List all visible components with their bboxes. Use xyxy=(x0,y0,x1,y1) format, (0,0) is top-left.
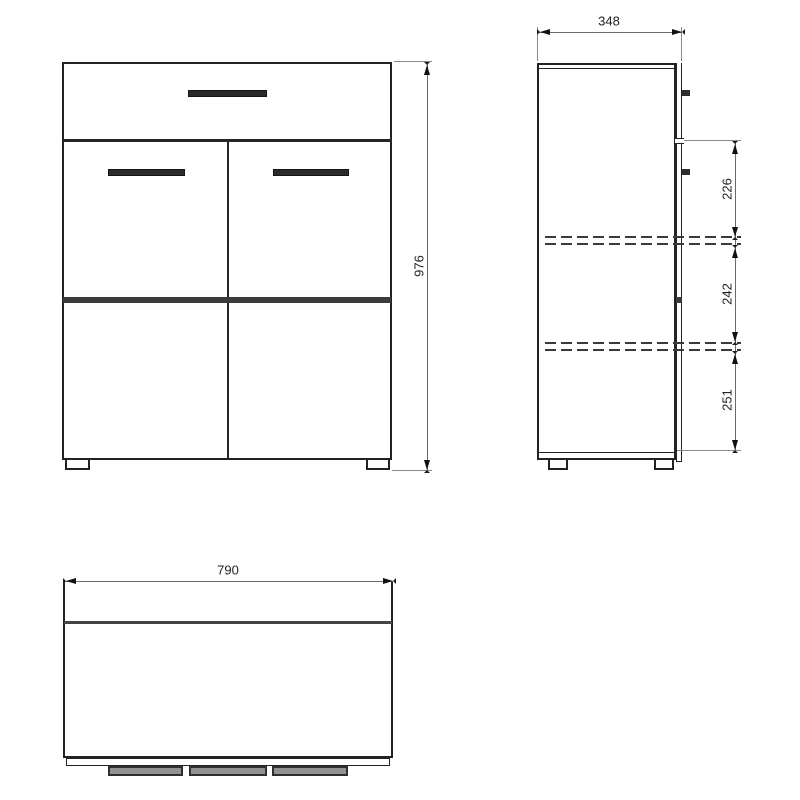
width-arrow-left-icon xyxy=(63,578,76,584)
front-right-foot xyxy=(366,460,390,470)
shelf-dashed-line-2b xyxy=(545,349,741,351)
shelf-dashed-line-2a xyxy=(545,342,741,344)
depth-arrow-right-icon xyxy=(672,29,685,35)
top-front-panel xyxy=(66,758,390,766)
section-arrow-2-icon xyxy=(732,227,738,240)
height-dim-line xyxy=(427,62,428,470)
front-accent-band xyxy=(63,297,391,303)
front-left-foot xyxy=(65,460,90,470)
side-top-panel-line xyxy=(539,68,674,69)
side-front-panel-joint xyxy=(675,138,684,144)
section-arrow-3-icon xyxy=(732,245,738,258)
side-bottom-panel-line xyxy=(539,452,674,453)
side-drawer-handle-knob xyxy=(682,90,690,96)
section-arrow-4-icon xyxy=(732,332,738,345)
top-back-edge-line xyxy=(64,621,392,624)
front-left-door-handle xyxy=(108,169,185,176)
section-dim-line xyxy=(735,141,736,450)
height-dimension-label: 976 xyxy=(413,255,426,277)
section-arrow-6-icon xyxy=(732,440,738,453)
shelf-spacing-label-3: 251 xyxy=(721,389,734,411)
width-dim-line xyxy=(63,581,393,582)
width-dimension-label: 790 xyxy=(217,564,239,577)
top-right-door-handle xyxy=(272,766,348,776)
front-right-door-handle xyxy=(273,169,349,176)
shelf-dashed-line-1b xyxy=(545,243,741,245)
section-arrow-1-icon xyxy=(732,141,738,154)
depth-arrow-left-icon xyxy=(537,29,550,35)
side-front-foot xyxy=(548,460,568,470)
side-accent-band-edge xyxy=(676,297,682,303)
depth-dimension-label: 348 xyxy=(598,15,620,28)
top-cabinet-body xyxy=(63,581,393,758)
side-front-panel xyxy=(676,63,682,462)
side-cabinet-body xyxy=(537,63,676,460)
technical-drawing-canvas: 976 348 xyxy=(0,0,800,800)
shelf-dashed-line-1a xyxy=(545,236,741,238)
top-left-door-handle xyxy=(108,766,183,776)
shelf-spacing-label-2: 242 xyxy=(721,283,734,305)
side-door-handle-knob xyxy=(682,169,690,175)
section-arrow-5-icon xyxy=(732,351,738,364)
top-drawer-handle xyxy=(189,766,267,776)
height-arrow-bottom-icon xyxy=(424,460,430,473)
depth-dim-line xyxy=(537,32,682,33)
height-arrow-top-icon xyxy=(424,62,430,75)
front-drawer-handle xyxy=(188,90,267,97)
side-back-foot xyxy=(654,460,674,470)
width-arrow-right-icon xyxy=(383,578,396,584)
shelf-spacing-label-1: 226 xyxy=(721,178,734,200)
